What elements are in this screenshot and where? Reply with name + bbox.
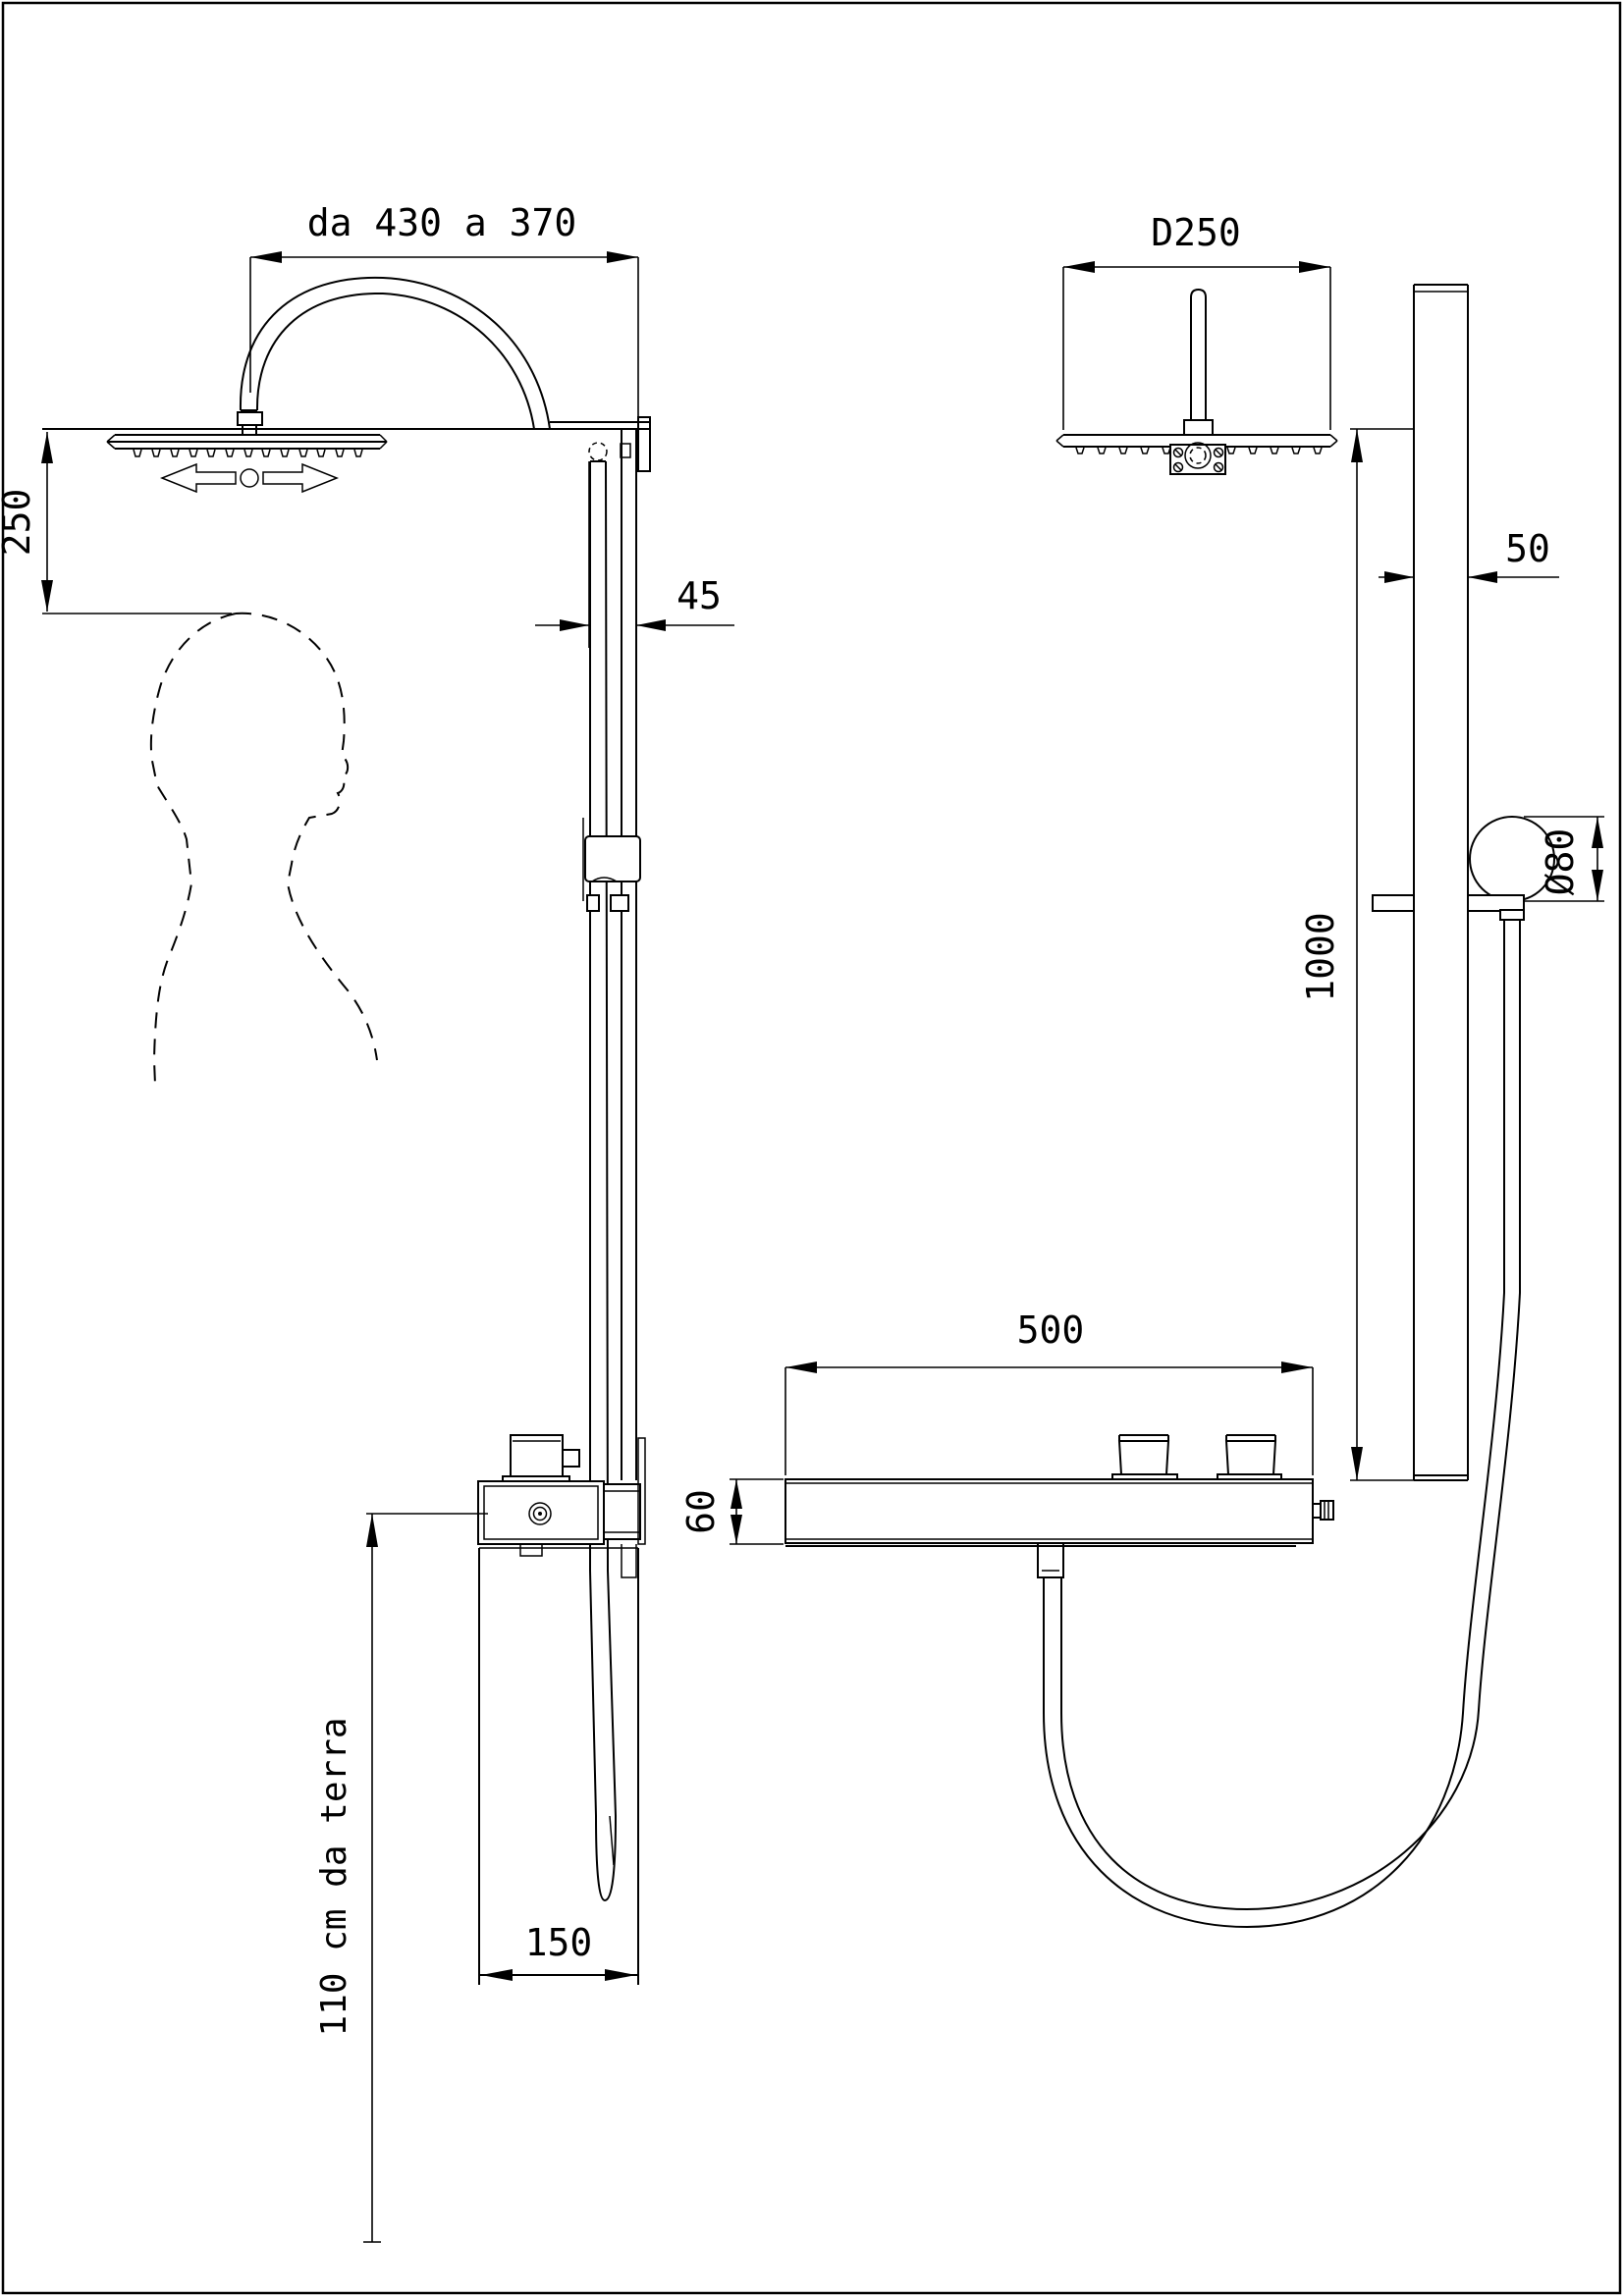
dim-slide-bar-length: 1000	[1299, 429, 1414, 1480]
mixer-side	[478, 1435, 645, 1577]
dim-head-clearance: 250	[0, 432, 232, 614]
showerhead-front	[1056, 435, 1337, 474]
shower-arm-arc	[238, 278, 550, 435]
dim-panel-width-label: 150	[525, 1921, 593, 1964]
mixer-knob-2	[1217, 1435, 1281, 1479]
adjustable-arrow-icon	[162, 464, 337, 492]
hose-inner	[1061, 1293, 1520, 1909]
dim-column-depth-label: 45	[676, 574, 722, 617]
dim-installation-height-label: 110 cm da terra	[314, 1717, 354, 2036]
user-silhouette	[151, 614, 377, 1085]
slide-bar-front	[1414, 285, 1468, 1480]
dim-holder-diameter-label: Ø80	[1539, 828, 1582, 896]
front-view: D250 50 1000	[679, 211, 1604, 1927]
ceiling-tube-front	[1184, 290, 1213, 435]
hose-outer	[1044, 1293, 1504, 1927]
handshower-front	[1044, 920, 1520, 1927]
mixer-wall-bracket-side	[604, 1484, 640, 1539]
handshower-wand-side	[590, 461, 616, 1900]
showerhead-side	[107, 435, 387, 456]
hose-connector-front	[1038, 1543, 1063, 1577]
mixer-body-front	[785, 1479, 1313, 1543]
slider-tab-front	[1373, 895, 1414, 911]
dim-showerhead-diameter: D250	[1063, 211, 1330, 430]
dim-showerhead-diameter-label: D250	[1151, 211, 1241, 254]
side-view: da 430 a 370 250 45 150	[0, 201, 734, 2242]
technical-drawing: da 430 a 370 250 45 150	[0, 0, 1623, 2296]
dim-head-clearance-label: 250	[0, 489, 38, 557]
mixer-front	[785, 1435, 1333, 1577]
dim-mixer-width: 500	[785, 1308, 1313, 1475]
mixer-knob-1	[1112, 1435, 1177, 1479]
dim-mixer-width-label: 500	[1017, 1308, 1085, 1352]
holder-front	[1373, 817, 1554, 920]
dim-arm-reach-label: da 430 a 370	[307, 201, 577, 244]
dim-slide-bar-length-label: 1000	[1299, 912, 1342, 1002]
dim-installation-height: 110 cm da terra	[314, 1514, 488, 2242]
dim-column-width-label: 50	[1505, 527, 1550, 570]
sheet-border	[3, 3, 1620, 2293]
slide-bar-side	[622, 429, 636, 1480]
nozzles-side	[134, 450, 362, 456]
drawing-sheet: da 430 a 370 250 45 150	[0, 0, 1623, 2296]
hose-connector-side	[520, 1544, 542, 1556]
wall-bracket-side	[550, 417, 650, 471]
dim-panel-width: 150	[481, 1921, 636, 1981]
dim-mixer-height: 60	[679, 1479, 784, 1544]
dim-mixer-height-label: 60	[679, 1489, 723, 1534]
dim-column-depth: 45	[535, 461, 734, 648]
holder-knob-side	[583, 818, 640, 911]
mount-plate-front	[1170, 443, 1225, 474]
mixer-outlet	[1313, 1501, 1333, 1520]
